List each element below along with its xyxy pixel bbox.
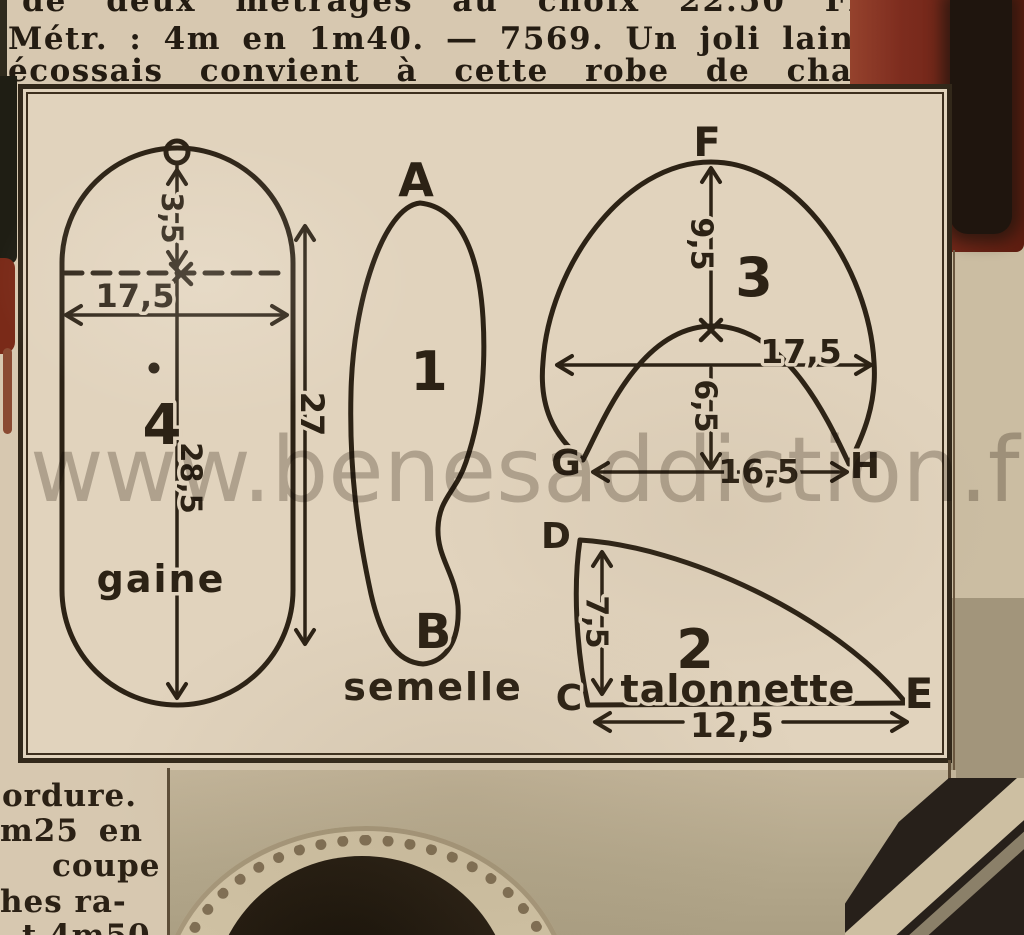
- piece3-point-h: H: [850, 446, 880, 487]
- gaine-dim-side: 27: [293, 392, 331, 437]
- pattern-piece-3: [542, 162, 874, 481]
- piece3-point-g: G: [551, 443, 581, 484]
- gaine-dim-length: 28,5: [174, 442, 208, 514]
- piece3-dim-notch: 6,5: [688, 379, 723, 432]
- left-edge-red-blob: [0, 258, 15, 354]
- talonnette-dim-height: 7,5: [579, 595, 614, 648]
- piece3-number: 3: [735, 246, 773, 309]
- semelle-number: 1: [410, 340, 448, 403]
- talonnette-point-e: E: [905, 669, 934, 718]
- semelle-point-a: A: [398, 153, 434, 207]
- semelle-label: semelle: [343, 665, 523, 709]
- pattern-piece-semelle: [351, 203, 484, 664]
- bottom-text-line-1: ordure.: [2, 778, 137, 814]
- piece3-dim-width: 17,5: [760, 332, 841, 371]
- talonnette-point-c: C: [556, 678, 582, 719]
- piece3-dim-front: 9,5: [684, 217, 719, 270]
- talonnette-point-d: D: [541, 516, 571, 557]
- talonnette-label: talonnette: [621, 667, 856, 711]
- top-text-line-1: de deux métrages au choix 22.50 Fr: [22, 0, 867, 19]
- piece3-point-f: F: [693, 120, 720, 166]
- talonnette-dim-width: 12,5: [690, 706, 774, 746]
- left-edge-dark-strip: [0, 76, 17, 264]
- pattern-diagram-box: 3,5 17,5 4 28,5 gaine 27 A 1 B semelle: [18, 84, 952, 763]
- bottom-text-line-2: m25 en: [0, 813, 143, 849]
- bottom-text-line-5: t 4m50: [22, 918, 151, 935]
- gaine-label: gaine: [97, 557, 226, 601]
- dark-shadow-band: [950, 0, 1012, 234]
- top-text-line-2: Métr. : 4m en 1m40. — 7569. Un joli lain…: [8, 21, 920, 57]
- gaine-top-notch: [166, 141, 188, 163]
- left-edge-maroon-streak: [3, 348, 12, 434]
- piece3-dim-base: 16,5: [718, 452, 799, 491]
- gaine-dim-width: 17,5: [96, 277, 175, 315]
- left-edge-mark-top: [0, 0, 7, 82]
- right-paper-column-beige: [951, 246, 1024, 606]
- bottom-text-line-4: hes ra-: [0, 884, 127, 920]
- semelle-point-b: B: [415, 604, 452, 660]
- pattern-diagram-svg: 3,5 17,5 4 28,5 gaine 27 A 1 B semelle: [35, 100, 945, 760]
- bottom-text-line-3: coupe: [52, 848, 161, 884]
- gaine-dot-mark: [149, 363, 160, 374]
- gaine-dim-top: 3,5: [155, 192, 189, 243]
- paper-crease-line: [167, 768, 170, 935]
- bottom-photo-fragment: [170, 770, 956, 935]
- newspaper-clipping-page: de deux métrages au choix 22.50 Fr Métr.…: [0, 0, 1024, 935]
